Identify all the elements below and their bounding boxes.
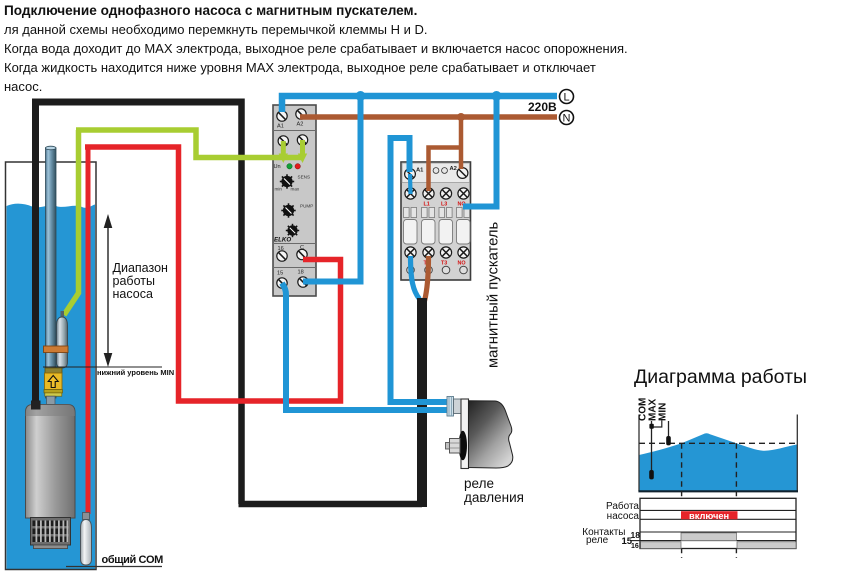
svg-text:MIN: MIN	[657, 403, 668, 421]
svg-text:T3: T3	[441, 261, 447, 267]
svg-text:max: max	[291, 187, 300, 192]
svg-text:N: N	[563, 113, 571, 125]
svg-text:Un: Un	[274, 164, 281, 170]
svg-text:L3: L3	[441, 202, 447, 208]
svg-text:A1: A1	[277, 124, 284, 130]
svg-text:L1: L1	[424, 202, 430, 208]
svg-text:NO: NO	[458, 261, 466, 267]
svg-text:C: C	[300, 245, 304, 251]
svg-text:L: L	[563, 92, 569, 104]
svg-text:A2: A2	[450, 166, 457, 172]
svg-text:SENS: SENS	[298, 175, 311, 180]
svg-text:15: 15	[277, 271, 283, 277]
svg-text:PUMP: PUMP	[300, 204, 313, 209]
svg-text:магнитный пускатель: магнитный пускатель	[486, 221, 502, 368]
svg-text:16: 16	[278, 246, 284, 252]
svg-text:A1: A1	[416, 168, 424, 174]
svg-text:min: min	[275, 187, 283, 192]
svg-text:18: 18	[298, 270, 304, 276]
svg-text:A2: A2	[297, 122, 304, 128]
svg-text:ELKO: ELKO	[274, 237, 291, 244]
